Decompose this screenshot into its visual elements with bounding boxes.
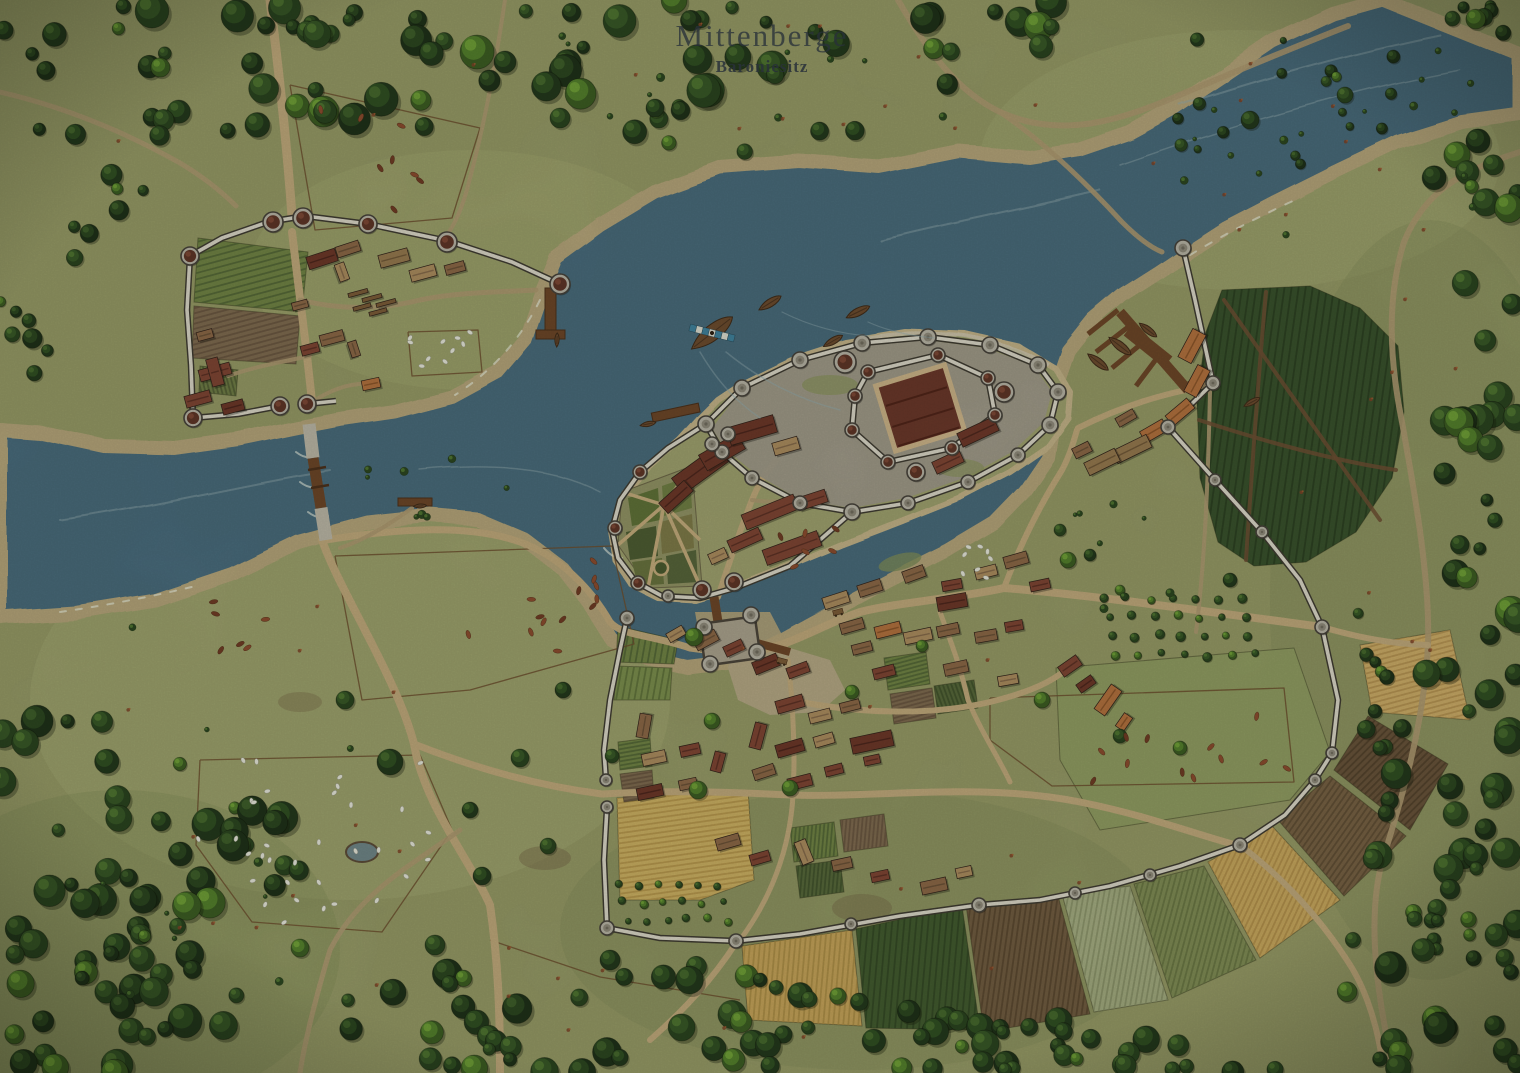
fantasy-town-map: Mittenberge Baroniesitz xyxy=(0,0,1520,1073)
map-canvas: Mittenberge Baroniesitz xyxy=(0,0,1520,1073)
vignette-overlay xyxy=(0,0,1520,1073)
